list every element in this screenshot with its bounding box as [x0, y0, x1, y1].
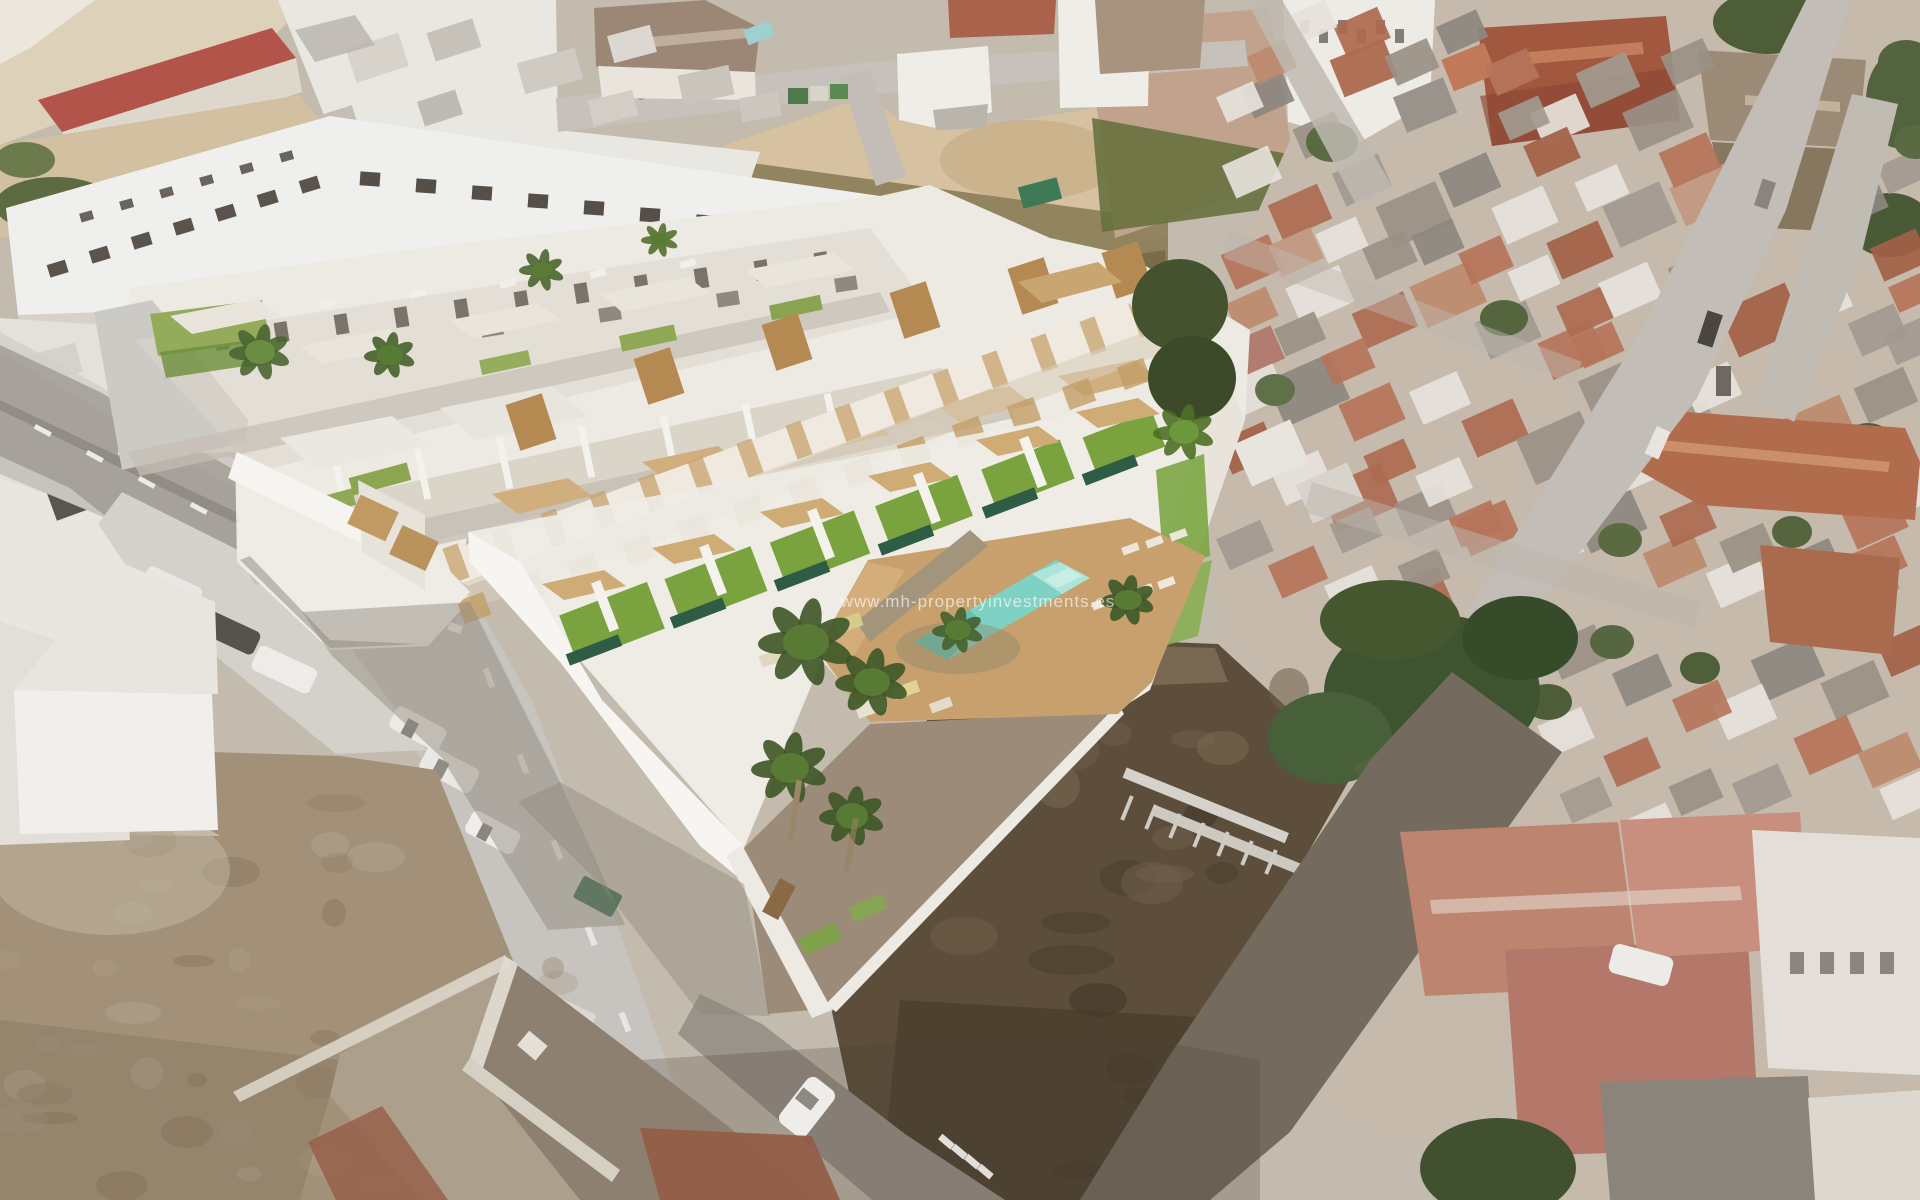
- svg-text:www.mh-propertyinvestments.es: www.mh-propertyinvestments.es: [840, 592, 1116, 611]
